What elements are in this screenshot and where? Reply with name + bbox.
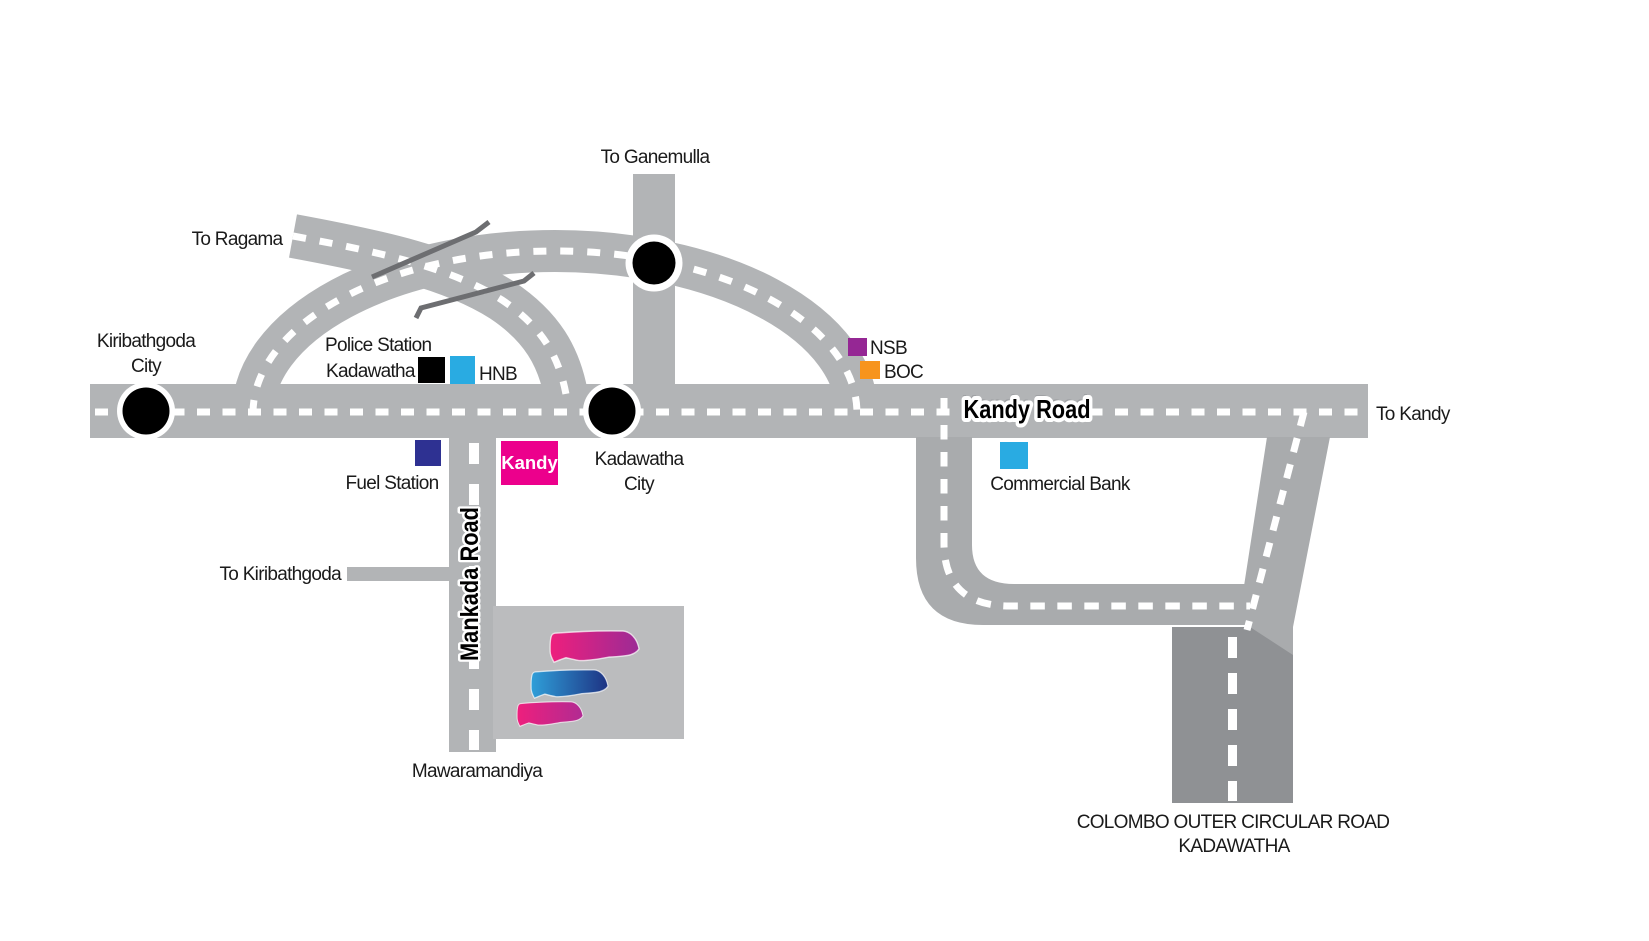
svg-text:To Ragama: To Ragama — [192, 229, 284, 250]
svg-text:Police Station: Police Station — [325, 335, 432, 356]
svg-text:HNB: HNB — [479, 364, 517, 385]
svg-text:City: City — [131, 356, 162, 377]
svg-text:Kandy: Kandy — [501, 452, 558, 473]
svg-text:To Kiribathgoda: To Kiribathgoda — [219, 564, 342, 585]
svg-text:Kandy Road: Kandy Road — [964, 394, 1091, 424]
svg-text:BOC: BOC — [884, 362, 923, 383]
svg-text:Kadawatha: Kadawatha — [595, 449, 685, 470]
svg-text:NSB: NSB — [870, 338, 907, 359]
svg-text:Mawaramandiya: Mawaramandiya — [412, 761, 543, 782]
svg-text:KADAWATHA: KADAWATHA — [1178, 836, 1290, 857]
svg-text:To Ganemulla: To Ganemulla — [601, 147, 711, 168]
svg-text:Kiribathgoda: Kiribathgoda — [97, 331, 196, 352]
svg-text:COLOMBO OUTER CIRCULAR ROAD: COLOMBO OUTER CIRCULAR ROAD — [1077, 812, 1390, 833]
svg-text:Fuel Station: Fuel Station — [346, 473, 439, 494]
svg-text:City: City — [624, 474, 655, 495]
svg-text:To Kandy: To Kandy — [1376, 404, 1451, 425]
svg-text:Mankada Road: Mankada Road — [456, 507, 484, 661]
svg-text:Commercial Bank: Commercial Bank — [990, 474, 1131, 495]
svg-text:Kadawatha: Kadawatha — [326, 361, 416, 382]
